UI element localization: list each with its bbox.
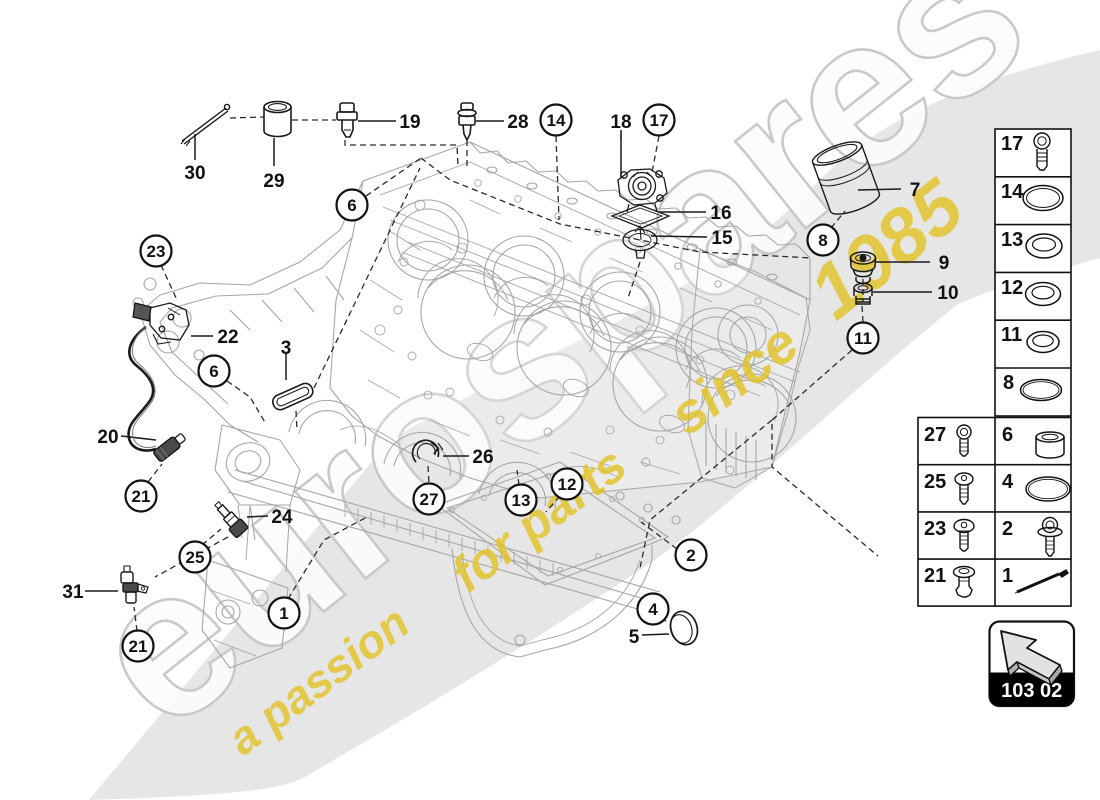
svg-text:4: 4	[648, 600, 658, 619]
svg-text:1: 1	[1002, 565, 1013, 587]
svg-text:7: 7	[910, 180, 921, 201]
svg-text:12: 12	[1001, 277, 1023, 299]
svg-text:6: 6	[209, 362, 218, 381]
svg-text:17: 17	[650, 111, 669, 130]
svg-text:3: 3	[281, 338, 292, 359]
svg-text:18: 18	[610, 112, 631, 133]
svg-text:13: 13	[1001, 229, 1023, 251]
svg-text:14: 14	[1001, 181, 1024, 203]
svg-text:28: 28	[507, 112, 528, 133]
svg-text:21: 21	[132, 487, 151, 506]
svg-text:2: 2	[1002, 518, 1013, 540]
svg-text:30: 30	[184, 163, 205, 184]
svg-text:27: 27	[420, 490, 439, 509]
svg-text:17: 17	[1001, 133, 1023, 155]
svg-text:10: 10	[937, 283, 958, 304]
svg-text:25: 25	[186, 548, 205, 567]
svg-text:20: 20	[97, 427, 118, 448]
svg-text:1: 1	[279, 604, 288, 623]
svg-text:21: 21	[129, 637, 148, 656]
svg-text:23: 23	[147, 242, 166, 261]
svg-text:8: 8	[1003, 372, 1014, 394]
svg-text:21: 21	[924, 565, 946, 587]
svg-text:11: 11	[1001, 324, 1022, 346]
svg-text:15: 15	[711, 228, 733, 249]
svg-text:12: 12	[558, 475, 577, 494]
svg-text:8: 8	[818, 231, 827, 250]
svg-text:9: 9	[939, 253, 950, 274]
svg-text:19: 19	[399, 112, 420, 133]
svg-text:5: 5	[629, 627, 640, 648]
svg-text:31: 31	[62, 582, 84, 603]
svg-text:4: 4	[1002, 471, 1014, 493]
svg-text:14: 14	[547, 111, 566, 130]
svg-text:24: 24	[271, 507, 293, 528]
svg-text:22: 22	[217, 327, 238, 348]
svg-text:11: 11	[854, 329, 872, 348]
svg-text:25: 25	[924, 471, 946, 493]
svg-text:13: 13	[512, 491, 531, 510]
svg-text:23: 23	[924, 518, 946, 540]
svg-text:27: 27	[924, 424, 946, 446]
svg-text:16: 16	[710, 203, 731, 224]
svg-text:26: 26	[472, 447, 493, 468]
svg-text:29: 29	[263, 171, 284, 192]
svg-text:2: 2	[686, 546, 695, 565]
svg-text:6: 6	[1002, 424, 1013, 446]
svg-text:6: 6	[347, 196, 356, 215]
